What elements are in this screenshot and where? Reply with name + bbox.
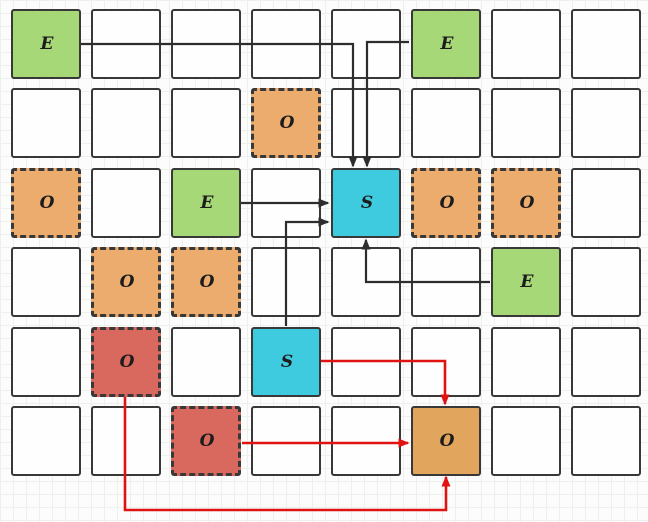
cell-O-orange-dashed-r4-c2: O — [91, 247, 161, 317]
grid-cell-r2-c3 — [171, 88, 241, 158]
cell-label: E — [201, 195, 214, 212]
cell-label: O — [40, 195, 55, 212]
grid-cell-r5-c7 — [491, 327, 561, 397]
cell-O-red-dashed-r6-c3: O — [171, 406, 241, 476]
grid-cell-r5-c6 — [411, 327, 481, 397]
grid-cell-r6-c5 — [331, 406, 401, 476]
cell-label: O — [120, 354, 135, 371]
grid-cell-r2-c8 — [571, 88, 641, 158]
grid-cell-r2-c7 — [491, 88, 561, 158]
cell-label: O — [440, 195, 455, 212]
cell-O-red-dashed-r5-c2: O — [91, 327, 161, 397]
cell-O-orange-dashed-r3-c6: O — [411, 168, 481, 238]
cell-label: E — [441, 36, 454, 53]
diagram-canvas: EEOOESOOOOEOSOO — [0, 0, 648, 522]
cell-label: S — [361, 195, 373, 212]
cell-label: O — [440, 433, 455, 450]
cell-E-green-solid-r4-c7: E — [491, 247, 561, 317]
grid-cell-r1-c7 — [491, 9, 561, 79]
cell-label: O — [120, 274, 135, 291]
grid-cell-r1-c4 — [251, 9, 321, 79]
grid-cell-r3-c4 — [251, 168, 321, 238]
cell-E-green-solid-r3-c3: E — [171, 168, 241, 238]
grid-cell-r2-c6 — [411, 88, 481, 158]
grid-cell-r4-c6 — [411, 247, 481, 317]
cell-E-green-solid-r1-c1: E — [11, 9, 81, 79]
cell-label: O — [200, 274, 215, 291]
grid-cell-r6-c8 — [571, 406, 641, 476]
grid-cell-r4-c1 — [11, 247, 81, 317]
grid-cell-r5-c3 — [171, 327, 241, 397]
cell-label: O — [280, 115, 295, 132]
grid-cell-r1-c8 — [571, 9, 641, 79]
cell-O-orange-dashed-r2-c4: O — [251, 88, 321, 158]
cell-S-cyan-solid-r3-c5: S — [331, 168, 401, 238]
grid-cell-r4-c5 — [331, 247, 401, 317]
cell-O-orange-dashed-r3-c7: O — [491, 168, 561, 238]
grid-cell-r2-c5 — [331, 88, 401, 158]
cell-O-orange-dashed-r3-c1: O — [11, 168, 81, 238]
grid-cell-r2-c2 — [91, 88, 161, 158]
grid-cell-r5-c8 — [571, 327, 641, 397]
grid-cell-r5-c5 — [331, 327, 401, 397]
grid-cell-r1-c2 — [91, 9, 161, 79]
cell-label: O — [520, 195, 535, 212]
cell-label: O — [200, 433, 215, 450]
grid-cell-r6-c1 — [11, 406, 81, 476]
grid-cell-r6-c2 — [91, 406, 161, 476]
grid-cell-r6-c4 — [251, 406, 321, 476]
cell-S-cyan-solid-r5-c4: S — [251, 327, 321, 397]
cell-label: S — [281, 354, 293, 371]
cell-E-green-solid-r1-c6: E — [411, 9, 481, 79]
grid-cell-r5-c1 — [11, 327, 81, 397]
cell-O-orange-dashed-r4-c3: O — [171, 247, 241, 317]
grid-cell-r2-c1 — [11, 88, 81, 158]
grid-cell-r1-c3 — [171, 9, 241, 79]
grid-cell-r4-c4 — [251, 247, 321, 317]
grid-cell-r1-c5 — [331, 9, 401, 79]
grid-cell-r3-c2 — [91, 168, 161, 238]
grid-cell-r3-c8 — [571, 168, 641, 238]
grid-cell-r6-c7 — [491, 406, 561, 476]
grid-cell-r4-c8 — [571, 247, 641, 317]
cell-O-orange-solid-r6-c6: O — [411, 406, 481, 476]
cell-label: E — [521, 274, 534, 291]
cell-label: E — [41, 36, 54, 53]
